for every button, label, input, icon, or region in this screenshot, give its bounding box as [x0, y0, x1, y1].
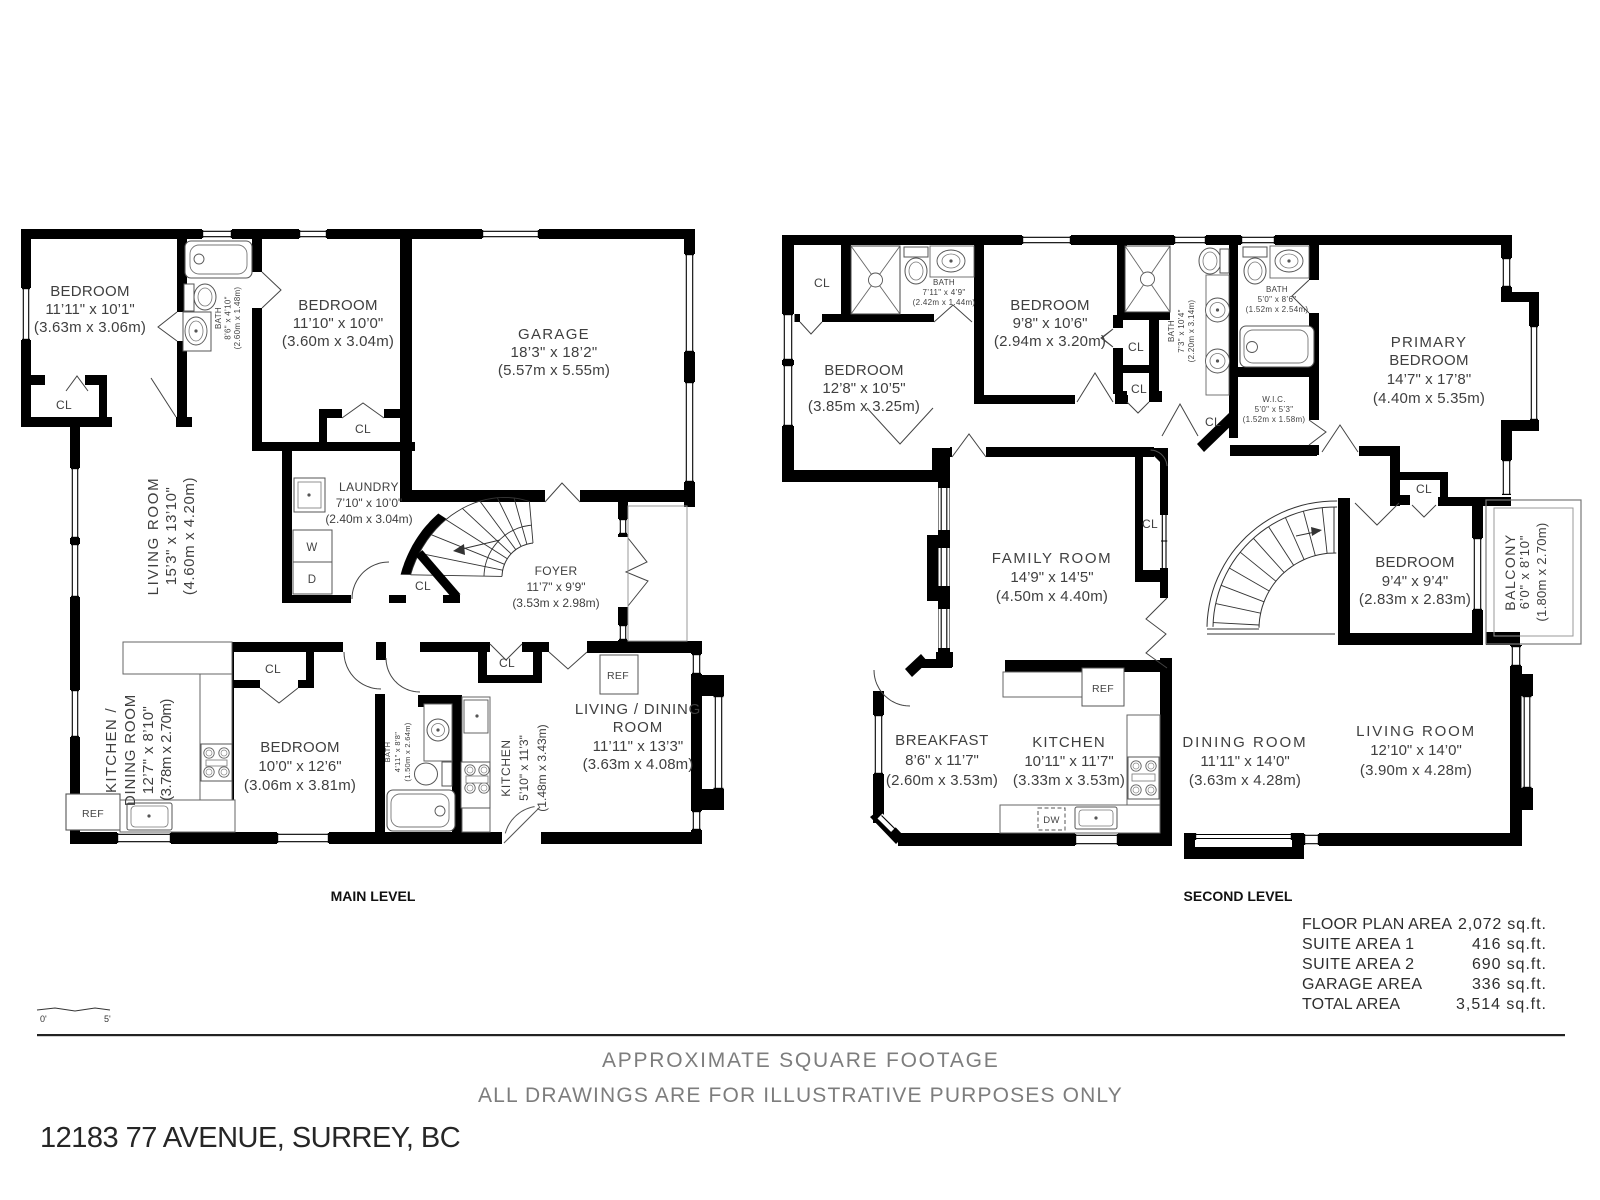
svg-text:(3.33m x 3.53m): (3.33m x 3.53m): [1013, 772, 1125, 789]
svg-text:5’10" x 11’3": 5’10" x 11’3": [517, 735, 531, 801]
svg-text:BATH: BATH: [1167, 320, 1176, 342]
svg-text:BATH: BATH: [214, 307, 223, 329]
svg-text:D: D: [308, 574, 317, 586]
svg-text:CL: CL: [1142, 517, 1158, 531]
svg-text:BATH: BATH: [933, 278, 955, 287]
svg-text:7’10" x 10’0": 7’10" x 10’0": [336, 496, 403, 510]
svg-text:BEDROOM: BEDROOM: [260, 739, 340, 756]
svg-text:11’10" x 10’0": 11’10" x 10’0": [293, 315, 383, 332]
svg-text:ROOM: ROOM: [613, 719, 663, 736]
svg-text:TOTAL AREA: TOTAL AREA: [1302, 996, 1400, 1013]
svg-text:12183 77 AVENUE, SURREY, BC: 12183 77 AVENUE, SURREY, BC: [40, 1122, 461, 1154]
svg-text:(4.50m x 4.40m): (4.50m x 4.40m): [996, 588, 1108, 605]
svg-text:APPROXIMATE SQUARE FOOTAGE: APPROXIMATE SQUARE FOOTAGE: [602, 1049, 998, 1072]
svg-text:8’6" x 4’10": 8’6" x 4’10": [224, 296, 233, 340]
svg-text:DW: DW: [1043, 815, 1059, 826]
svg-text:LAUNDRY: LAUNDRY: [339, 480, 399, 494]
svg-text:SUITE AREA 1: SUITE AREA 1: [1302, 936, 1414, 953]
svg-text:BATH: BATH: [383, 742, 392, 763]
svg-text:DINING ROOM: DINING ROOM: [1182, 734, 1307, 751]
svg-text:SECOND LEVEL: SECOND LEVEL: [1184, 888, 1293, 904]
svg-text:4’11" x 8’8": 4’11" x 8’8": [393, 732, 402, 773]
svg-text:CL: CL: [1131, 382, 1147, 396]
svg-text:14’7" x 17’8": 14’7" x 17’8": [1387, 371, 1472, 388]
svg-text:KITCHEN: KITCHEN: [1032, 734, 1106, 751]
svg-text:15’3" x 13’10": 15’3" x 13’10": [163, 487, 180, 586]
svg-text:(1.80m x 2.70m): (1.80m x 2.70m): [1534, 522, 1549, 621]
svg-text:CL: CL: [814, 276, 830, 290]
svg-text:LIVING ROOM: LIVING ROOM: [1356, 723, 1476, 740]
svg-text:(5.57m x 5.55m): (5.57m x 5.55m): [498, 362, 610, 379]
svg-text:FOYER: FOYER: [535, 564, 578, 578]
svg-text:0': 0': [40, 1014, 47, 1024]
svg-text:BEDROOM: BEDROOM: [1389, 352, 1469, 369]
svg-text:FLOOR PLAN AREA: FLOOR PLAN AREA: [1302, 916, 1452, 933]
svg-text:W.I.C.: W.I.C.: [1262, 395, 1286, 404]
svg-text:MAIN LEVEL: MAIN LEVEL: [331, 888, 416, 904]
svg-text:BEDROOM: BEDROOM: [1375, 554, 1455, 571]
svg-text:CL: CL: [1416, 482, 1432, 496]
svg-text:(2.40m x 3.04m): (2.40m x 3.04m): [325, 512, 412, 526]
svg-text:KITCHEN /: KITCHEN /: [103, 707, 120, 793]
svg-text:CL: CL: [265, 662, 281, 676]
svg-text:7’11" x 4’9": 7’11" x 4’9": [923, 288, 966, 297]
svg-text:14’9" x 14’5": 14’9" x 14’5": [1010, 569, 1093, 586]
svg-text:GARAGE: GARAGE: [518, 326, 590, 343]
svg-text:10’0" x 12’6": 10’0" x 12’6": [258, 758, 341, 775]
svg-text:5’0" x 8’6": 5’0" x 8’6": [1258, 295, 1297, 304]
svg-text:(4.60m x 4.20m): (4.60m x 4.20m): [181, 477, 198, 595]
svg-text:(3.53m x 2.98m): (3.53m x 2.98m): [512, 596, 599, 610]
svg-text:(3.63m x 4.28m): (3.63m x 4.28m): [1189, 772, 1301, 789]
svg-text:(2.20m x 3.14m): (2.20m x 3.14m): [1187, 300, 1196, 363]
svg-text:GARAGE AREA: GARAGE AREA: [1302, 976, 1422, 993]
svg-text:(1.52m x 2.54m): (1.52m x 2.54m): [1246, 305, 1309, 314]
svg-text:9’4" x 9’4": 9’4" x 9’4": [1382, 573, 1449, 590]
svg-text:11’11" x 13’3": 11’11" x 13’3": [593, 738, 684, 755]
svg-text:11’7" x 9’9": 11’7" x 9’9": [527, 580, 586, 594]
svg-text:(2.60m x 3.53m): (2.60m x 3.53m): [886, 772, 998, 789]
svg-text:CL: CL: [1205, 415, 1221, 429]
svg-text:12’7" x 8’10": 12’7" x 8’10": [140, 706, 157, 794]
svg-text:8’6" x 11’7": 8’6" x 11’7": [905, 752, 979, 769]
svg-text:12’8" x 10’5": 12’8" x 10’5": [822, 380, 905, 397]
svg-text:BEDROOM: BEDROOM: [824, 362, 904, 379]
svg-text:11’11" x 10’1": 11’11" x 10’1": [45, 301, 134, 318]
svg-text:416 sq.ft.: 416 sq.ft.: [1472, 936, 1546, 953]
svg-text:PRIMARY: PRIMARY: [1391, 334, 1467, 351]
svg-text:BALCONY: BALCONY: [1502, 533, 1518, 610]
svg-text:BEDROOM: BEDROOM: [298, 297, 378, 314]
svg-text:CL: CL: [415, 579, 431, 593]
svg-text:BEDROOM: BEDROOM: [50, 283, 130, 300]
svg-text:(2.94m x 3.20m): (2.94m x 3.20m): [994, 333, 1106, 350]
svg-text:BREAKFAST: BREAKFAST: [895, 732, 989, 749]
svg-text:FAMILY ROOM: FAMILY ROOM: [992, 550, 1112, 567]
svg-text:BATH: BATH: [1266, 285, 1288, 294]
svg-text:REF: REF: [82, 808, 104, 820]
svg-text:(3.78m x 2.70m): (3.78m x 2.70m): [158, 699, 175, 801]
svg-text:(3.63m x 3.06m): (3.63m x 3.06m): [34, 319, 146, 336]
svg-text:(1.50m x 2.64m): (1.50m x 2.64m): [403, 722, 412, 781]
svg-text:18’3" x 18’2": 18’3" x 18’2": [510, 344, 597, 361]
svg-text:(1.48m x 3.43m): (1.48m x 3.43m): [535, 724, 549, 811]
svg-text:(4.40m x 5.35m): (4.40m x 5.35m): [1373, 390, 1485, 407]
svg-text:2,072 sq.ft.: 2,072 sq.ft.: [1458, 916, 1546, 933]
svg-text:CL: CL: [355, 422, 371, 436]
svg-text:(2.60m x 1.48m): (2.60m x 1.48m): [233, 287, 242, 350]
svg-text:KITCHEN: KITCHEN: [499, 739, 513, 797]
svg-text:(3.90m x 4.28m): (3.90m x 4.28m): [1360, 762, 1472, 779]
svg-text:SUITE AREA 2: SUITE AREA 2: [1302, 956, 1414, 973]
svg-text:690 sq.ft.: 690 sq.ft.: [1472, 956, 1546, 973]
svg-text:336 sq.ft.: 336 sq.ft.: [1472, 976, 1546, 993]
svg-text:REF: REF: [607, 670, 629, 682]
svg-text:LIVING ROOM: LIVING ROOM: [145, 477, 162, 596]
svg-text:DINING ROOM: DINING ROOM: [122, 694, 139, 806]
svg-text:LIVING / DINING: LIVING / DINING: [575, 701, 701, 718]
svg-text:6’0" x 8’10": 6’0" x 8’10": [1517, 535, 1532, 609]
svg-text:7’3" x 10’4": 7’3" x 10’4": [1177, 309, 1186, 353]
svg-text:(2.83m x 2.83m): (2.83m x 2.83m): [1359, 591, 1471, 608]
svg-text:CL: CL: [499, 656, 515, 670]
svg-text:CL: CL: [1128, 340, 1144, 354]
svg-text:(2.42m x 1.44m): (2.42m x 1.44m): [913, 298, 976, 307]
svg-text:12’10" x 14’0": 12’10" x 14’0": [1370, 742, 1462, 759]
svg-text:ALL DRAWINGS ARE FOR ILLUSTRAT: ALL DRAWINGS ARE FOR ILLUSTRATIVE PURPOS…: [478, 1084, 1122, 1107]
svg-text:9’8" x 10’6": 9’8" x 10’6": [1013, 315, 1088, 332]
svg-text:CL: CL: [56, 398, 72, 412]
svg-text:W: W: [306, 542, 317, 554]
svg-text:(1.52m x 1.58m): (1.52m x 1.58m): [1243, 415, 1306, 424]
svg-text:REF: REF: [1092, 683, 1114, 695]
svg-text:3,514 sq.ft.: 3,514 sq.ft.: [1456, 996, 1546, 1013]
svg-text:BEDROOM: BEDROOM: [1010, 297, 1090, 314]
svg-text:(3.63m x 4.08m): (3.63m x 4.08m): [583, 756, 694, 773]
svg-text:11’11" x 14’0": 11’11" x 14’0": [1200, 753, 1289, 770]
svg-text:(3.06m x 3.81m): (3.06m x 3.81m): [244, 777, 356, 794]
svg-text:(3.60m x 3.04m): (3.60m x 3.04m): [282, 333, 394, 350]
svg-text:5’0" x 5’3": 5’0" x 5’3": [1255, 405, 1294, 414]
svg-text:(3.85m x 3.25m): (3.85m x 3.25m): [808, 398, 920, 415]
svg-text:10’11" x 11’7": 10’11" x 11’7": [1024, 753, 1113, 770]
svg-text:5': 5': [104, 1014, 111, 1024]
